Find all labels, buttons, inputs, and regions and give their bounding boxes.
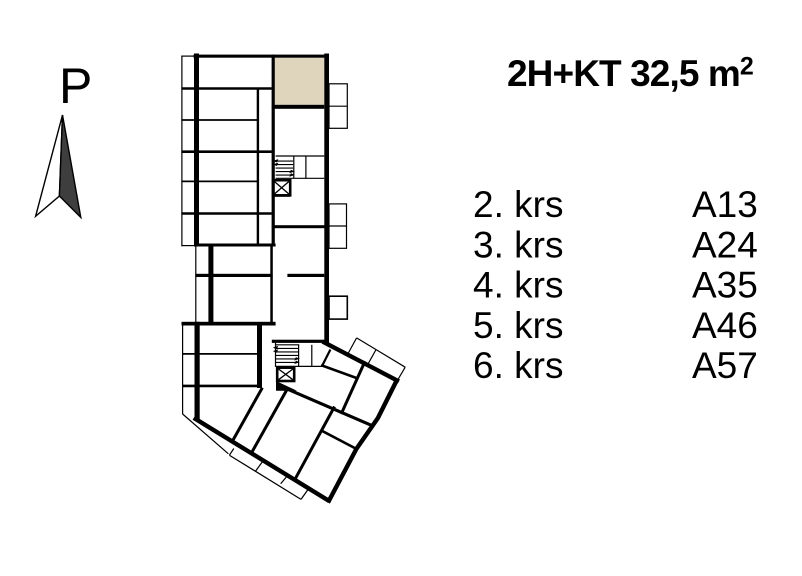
svg-text:A24: A24 <box>692 224 758 265</box>
svg-text:A35: A35 <box>692 265 758 306</box>
svg-text:3. krs: 3. krs <box>473 224 563 265</box>
svg-text:P: P <box>59 58 92 114</box>
svg-text:6. krs: 6. krs <box>473 345 563 386</box>
svg-text:2H+KT 32,5 m2: 2H+KT 32,5 m2 <box>507 53 753 95</box>
svg-text:5. krs: 5. krs <box>473 305 563 346</box>
svg-text:A46: A46 <box>692 305 758 346</box>
svg-text:4. krs: 4. krs <box>473 265 563 306</box>
svg-text:A57: A57 <box>692 345 758 386</box>
svg-text:A13: A13 <box>692 184 758 225</box>
svg-text:2. krs: 2. krs <box>473 184 563 225</box>
